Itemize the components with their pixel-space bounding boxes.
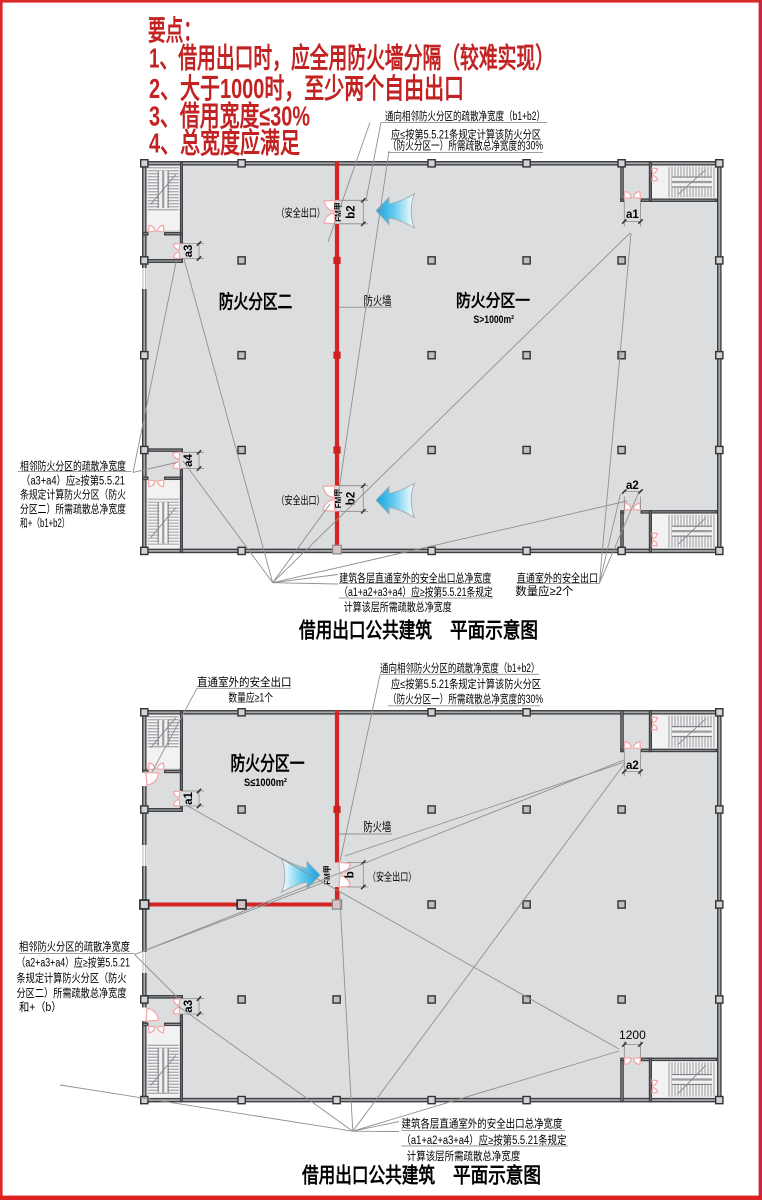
svg-text:数量应≥1个: 数量应≥1个 [228, 691, 273, 705]
svg-text:建筑各层直通室外的安全出口总净宽度: 建筑各层直通室外的安全出口总净宽度 [339, 571, 491, 585]
svg-text:平面示意图: 平面示意图 [450, 619, 538, 643]
svg-text:和+（b）: 和+（b） [19, 1001, 62, 1014]
svg-text:1200: 1200 [619, 1028, 646, 1042]
svg-text:a3: a3 [183, 245, 195, 258]
svg-text:（安全出口）: （安全出口） [277, 493, 325, 507]
svg-text:（安全出口）: （安全出口） [277, 206, 326, 220]
svg-text:条规定计算防火分区（防火: 条规定计算防火分区（防火 [20, 488, 126, 502]
svg-text:建筑各层直通室外的安全出口总净宽度: 建筑各层直通室外的安全出口总净宽度 [402, 1117, 563, 1131]
svg-text:a2: a2 [626, 760, 639, 772]
svg-text:（安全出口）: （安全出口） [368, 870, 417, 884]
svg-text:（a1+a2+a3+a4）应≥按第5.5.21条规定: （a1+a2+a3+a4）应≥按第5.5.21条规定 [402, 1133, 567, 1147]
svg-text:b2: b2 [346, 205, 358, 218]
svg-text:平面示意图: 平面示意图 [453, 1164, 541, 1188]
svg-text:借用出口公共建筑: 借用出口公共建筑 [301, 1164, 435, 1188]
svg-text:S≤1000m²: S≤1000m² [244, 777, 287, 789]
svg-text:a1: a1 [626, 209, 639, 221]
svg-text:4、总宽度应满足: 4、总宽度应满足 [149, 127, 300, 159]
svg-text:防火分区二: 防火分区二 [219, 290, 292, 313]
svg-text:分区二）所需疏散总净宽度: 分区二）所需疏散总净宽度 [17, 986, 127, 1000]
svg-text:（防火分区一）所需疏散总净宽度的30%: （防火分区一）所需疏散总净宽度的30% [388, 692, 543, 706]
svg-text:直通室外的安全出口: 直通室外的安全出口 [197, 675, 292, 689]
svg-text:和+（b1+b2）: 和+（b1+b2） [20, 517, 70, 530]
svg-text:数量应≥2个: 数量应≥2个 [515, 584, 573, 598]
svg-text:防火墙: 防火墙 [363, 819, 391, 834]
svg-text:计算该层所需疏散总净宽度: 计算该层所需疏散总净宽度 [407, 1149, 521, 1163]
svg-text:计算该层所需疏散总净宽度: 计算该层所需疏散总净宽度 [344, 600, 452, 614]
svg-text:b2: b2 [346, 492, 358, 505]
svg-text:防火分区一: 防火分区一 [231, 752, 305, 775]
svg-text:（a2+a3+a4）应≥按第5.5.21: （a2+a3+a4）应≥按第5.5.21 [17, 955, 131, 969]
svg-text:通向相邻防火分区的疏散净宽度（b1+b2）: 通向相邻防火分区的疏散净宽度（b1+b2） [385, 109, 545, 123]
svg-text:2、大于1000时，至少两个自由出口: 2、大于1000时，至少两个自由出口 [149, 73, 464, 104]
svg-text:直通室外的安全出口: 直通室外的安全出口 [517, 571, 598, 585]
svg-text:a2: a2 [626, 480, 639, 492]
svg-text:b: b [345, 871, 357, 878]
svg-text:防火分区一: 防火分区一 [456, 291, 530, 311]
svg-text:分区二）所需疏散总净宽度: 分区二）所需疏散总净宽度 [20, 502, 126, 516]
svg-text:a4: a4 [183, 453, 195, 466]
svg-text:a1: a1 [183, 792, 195, 805]
svg-text:应≤按第5.5.21条规定计算该防火分区: 应≤按第5.5.21条规定计算该防火分区 [391, 677, 541, 691]
svg-text:S>1000m²: S>1000m² [474, 314, 515, 326]
svg-text:1、借用出口时，应全用防火墙分隔（较难实现）: 1、借用出口时，应全用防火墙分隔（较难实现） [149, 41, 554, 73]
svg-text:相邻防火分区的疏散净宽度: 相邻防火分区的疏散净宽度 [20, 459, 126, 473]
svg-text:（防火分区一）所需疏散总净宽度的30%: （防火分区一）所需疏散总净宽度的30% [388, 138, 543, 152]
svg-text:相邻防火分区的疏散净宽度: 相邻防火分区的疏散净宽度 [19, 940, 130, 954]
svg-text:借用出口公共建筑: 借用出口公共建筑 [298, 619, 432, 643]
svg-text:通向相邻防火分区的疏散净宽度（b1+b2）: 通向相邻防火分区的疏散净宽度（b1+b2） [380, 661, 540, 675]
svg-text:（a1+a2+a3+a4）应≥按第5.5.21条规定: （a1+a2+a3+a4）应≥按第5.5.21条规定 [339, 585, 493, 599]
svg-text:条规定计算防火分区（防火: 条规定计算防火分区（防火 [17, 971, 127, 985]
svg-text:（a3+a4）应≥按第5.5.21: （a3+a4）应≥按第5.5.21 [21, 473, 125, 487]
